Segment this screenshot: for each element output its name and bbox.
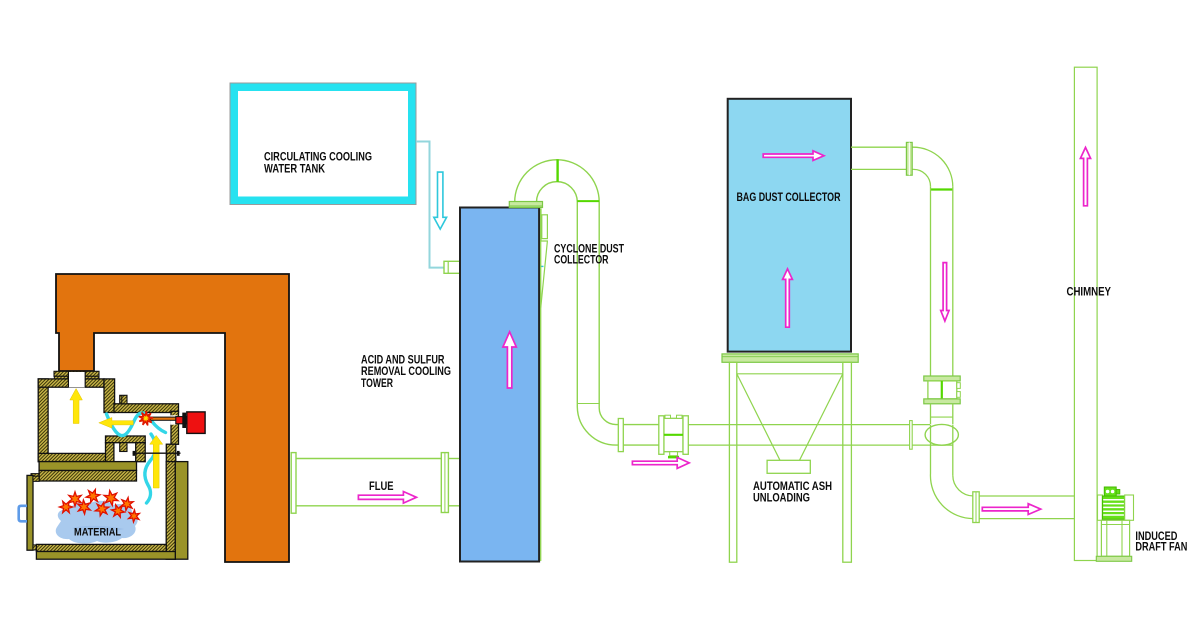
svg-text:FLUE: FLUE [369,479,394,493]
svg-text:MATERIAL: MATERIAL [74,527,121,539]
svg-text:WATER TANK: WATER TANK [264,161,325,175]
svg-text:BAG DUST COLLECTOR: BAG DUST COLLECTOR [737,190,841,204]
svg-text:DRAFT FAN: DRAFT FAN [1135,540,1187,554]
svg-text:UNLOADING: UNLOADING [753,490,810,504]
svg-text:COLLECTOR: COLLECTOR [554,253,609,267]
svg-text:TOWER: TOWER [361,376,393,390]
svg-text:CHIMNEY: CHIMNEY [1067,284,1112,298]
